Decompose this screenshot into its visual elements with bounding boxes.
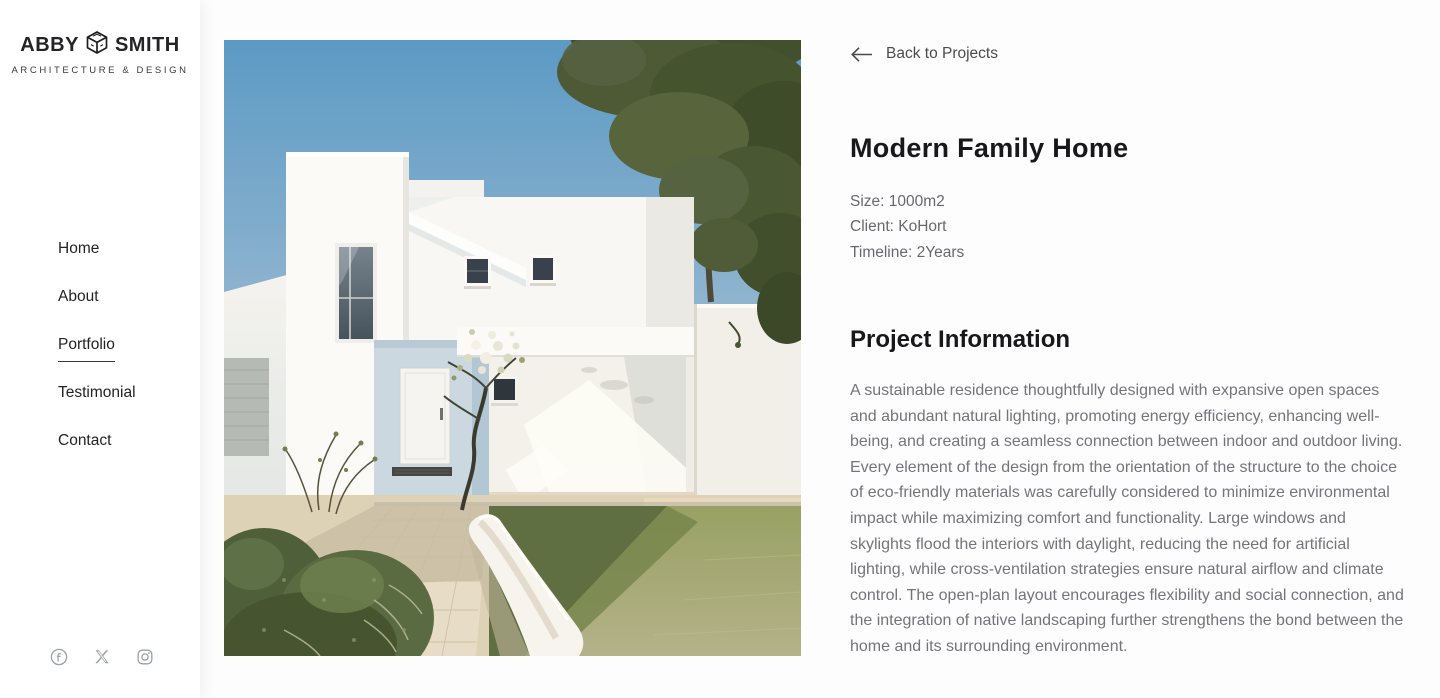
sidebar-item-home[interactable]: Home — [58, 240, 136, 288]
arrow-left-icon — [850, 46, 873, 63]
meta-client: Client: KoHort — [850, 214, 964, 239]
brand-first-name: ABBY — [20, 34, 79, 57]
sidebar: ABBY SMITH ARCHITECTURE & DESIGN Home Ab… — [0, 0, 200, 698]
brand-tagline: ARCHITECTURE & DESIGN — [0, 65, 200, 76]
sidebar-item-portfolio[interactable]: Portfolio — [58, 336, 136, 384]
project-photo — [224, 40, 801, 656]
sidebar-item-contact[interactable]: Contact — [58, 432, 136, 480]
project-detail: Back to Projects Modern Family Home Size… — [850, 0, 1406, 698]
social-links — [50, 648, 154, 666]
sidebar-nav: Home About Portfolio Testimonial Contact — [58, 240, 136, 480]
facebook-icon[interactable] — [50, 648, 68, 666]
instagram-icon[interactable] — [136, 648, 154, 666]
cube-icon — [85, 30, 109, 60]
project-title: Modern Family Home — [850, 133, 1128, 164]
sidebar-item-about[interactable]: About — [58, 288, 136, 336]
brand-logo[interactable]: ABBY SMITH ARCHITECTURE & DESIGN — [0, 30, 200, 76]
meta-timeline: Timeline: 2Years — [850, 240, 964, 265]
project-description: A sustainable residence thoughtfully des… — [850, 378, 1406, 660]
section-heading-project-information: Project Information — [850, 326, 1070, 354]
brand-last-name: SMITH — [115, 34, 180, 57]
meta-size: Size: 1000m2 — [850, 189, 964, 214]
x-icon[interactable] — [93, 648, 111, 666]
back-to-projects-label: Back to Projects — [886, 45, 998, 63]
sidebar-item-testimonial[interactable]: Testimonial — [58, 384, 136, 432]
project-meta: Size: 1000m2 Client: KoHort Timeline: 2Y… — [850, 189, 964, 265]
back-to-projects-link[interactable]: Back to Projects — [850, 45, 998, 63]
